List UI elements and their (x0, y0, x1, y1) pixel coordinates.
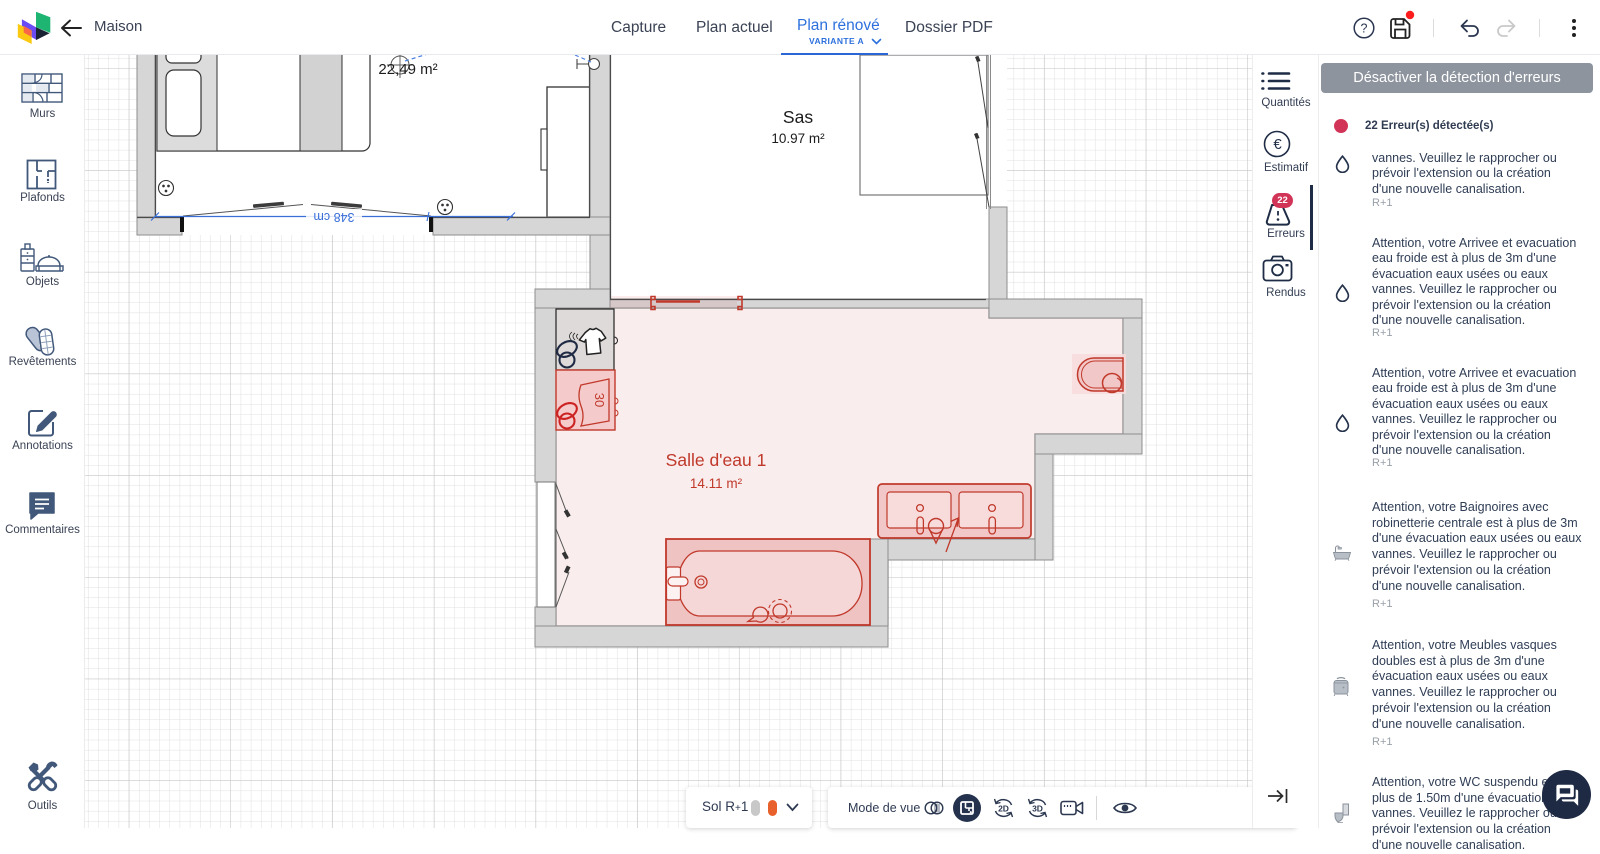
svg-text:3D: 3D (1032, 804, 1043, 814)
svg-text:14.11 m²: 14.11 m² (690, 476, 743, 491)
svg-text:€: € (1273, 136, 1282, 153)
svg-text:30: 30 (592, 393, 607, 407)
svg-text:2D: 2D (998, 804, 1009, 814)
svg-text:348 cm: 348 cm (314, 210, 355, 224)
svg-text:10.97 m²: 10.97 m² (771, 131, 825, 146)
svg-text:?: ? (1361, 22, 1368, 36)
svg-text:Sas: Sas (783, 107, 813, 127)
svg-text:Salle d'eau 1: Salle d'eau 1 (666, 450, 767, 470)
svg-text:22,49 m²: 22,49 m² (378, 61, 437, 78)
